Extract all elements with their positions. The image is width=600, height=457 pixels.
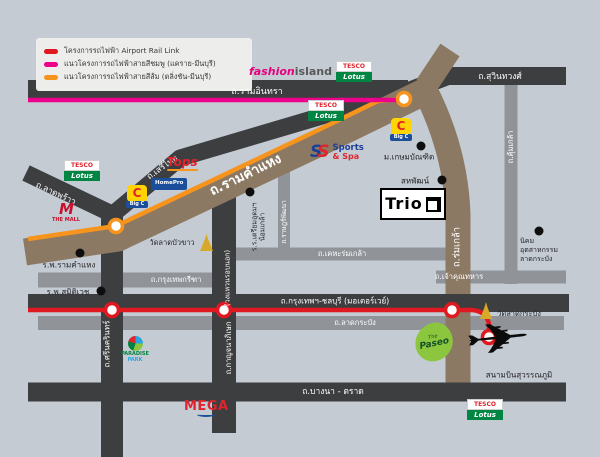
trio-cube-icon <box>426 197 441 212</box>
sports-spa-line2: & Spa <box>333 153 364 161</box>
paradise-park-line2: PARK <box>117 358 153 364</box>
legend-item-orange-line: แนวโครงการรถไฟฟ้าสายสีส้ม (ตลิ่งชัน-มีนบ… <box>44 72 244 83</box>
road-label-ramintra: ถ.รามอินทรา <box>231 84 283 98</box>
road-label-kanchanaphisek: ถ.กาญจนาภิเษก <box>223 322 235 375</box>
orange-line-swatch <box>44 75 58 80</box>
poi-label-wat-lad-bua-khaw: วัดลาดบัวขาว <box>149 237 194 249</box>
paradise-park-logo: PARADISE PARK <box>117 336 153 364</box>
bigc-wordmark: Big C <box>126 201 148 208</box>
poi-label-nikhom-lat-krabang: นิคม อุตสาหกรรม ลาดกระบัง <box>520 237 558 263</box>
tesco-wordmark: TESCO <box>467 399 503 410</box>
road-label-krungthep-kreetha: ถ.กรุงเทพกรีฑา <box>151 274 202 286</box>
legend-label: แนวโครงการรถไฟฟ้าสายสีส้ม (ตลิ่งชัน-มีนบ… <box>64 72 211 83</box>
arl-line-swatch <box>44 49 58 54</box>
tesco-wordmark: TESCO <box>308 100 344 111</box>
legend-label: แนวโครงการรถไฟฟ้าสายสีชมพู (แคราย-มีนบุร… <box>64 59 216 70</box>
poi-label-ram-hospital: ร.พ.รามคำแหง <box>43 259 96 272</box>
legend-item-pink-line: แนวโครงการรถไฟฟ้าสายสีชมพู (แคราย-มีนบุร… <box>44 59 244 70</box>
poi-dot-ram-hospital <box>76 249 85 258</box>
poi-label-sahapat: สหพัฒน์ <box>401 175 429 188</box>
pink-line-swatch <box>44 62 58 67</box>
homepro-logo: HomePro <box>151 178 187 190</box>
nikhom-line1: นิคม <box>520 237 558 246</box>
road-label-suwinthawong: ถ.สุวินทวงศ์ <box>478 69 522 83</box>
poi-dot-nikhom-lat-krabang <box>535 227 544 236</box>
poi-label-samitivej: ร.พ.สมิติเวช <box>47 286 90 299</box>
trio-wordmark: Trio <box>385 196 423 212</box>
bigc-logo-romklao: C Big C <box>390 118 412 141</box>
sports-and-spa-logo: S S Sports & Spa <box>310 144 364 161</box>
bigc-c-mark: C <box>391 118 411 135</box>
road-label-bangna-trat: ถ.บางนา - ตราด <box>302 384 364 398</box>
tesco-lotus-logo-latphrao: TESCO Lotus <box>64 160 100 181</box>
tesco-wordmark: TESCO <box>64 160 100 171</box>
tops-market-logo: Tops <box>167 156 198 171</box>
road-label-kanchanaphisek-sub: (วงแหวนรอบนอก) <box>223 250 234 306</box>
fashion-island-word2: island <box>295 65 332 78</box>
trio-logo: Trio <box>380 188 446 220</box>
road-label-motorway: ถ.กรุงเทพฯ-ชลบุรี (มอเตอร์เวย์) <box>281 295 390 308</box>
station-lam-sali <box>110 220 123 233</box>
legend-label: โครงการรถไฟฟ้า Airport Rail Link <box>64 46 179 57</box>
bigc-wordmark: Big C <box>390 134 412 141</box>
tesco-lotus-logo-ramintra-south: TESCO Lotus <box>308 100 344 121</box>
nikhom-line3: ลาดกระบัง <box>520 255 558 264</box>
legend-item-arl: โครงการรถไฟฟ้า Airport Rail Link <box>44 46 244 57</box>
airplane-icon: ✈ <box>462 315 534 363</box>
station-minburi-junction <box>398 93 411 106</box>
road-label-srinakarin: ถ.ศรีนครินทร์ <box>101 321 114 368</box>
lotus-wordmark: Lotus <box>336 72 372 82</box>
poi-dot-sahapat <box>438 176 447 185</box>
nikhom-line2: อุตสาหกรรม <box>520 246 558 255</box>
road-label-kheha-romklao: ถ.เคหะร่มเกล้า <box>318 248 366 260</box>
road-label-ratphatthana: ถ.ราษฎร์พัฒนา <box>279 200 289 244</box>
lotus-wordmark: Lotus <box>64 171 100 181</box>
tesco-wordmark: TESCO <box>336 61 372 72</box>
poi-label-kasem-bundit: ม.เกษมบัณฑิต <box>384 151 434 164</box>
paseo-wordmark: Paseo <box>419 337 450 352</box>
lotus-wordmark: Lotus <box>467 410 503 420</box>
the-mall-wordmark: THE MALL <box>44 218 88 223</box>
fashion-island-logo: fashionisland <box>249 62 332 78</box>
the-mall-m-mark: M <box>44 202 88 217</box>
road-label-lat-krabang: ถ.ลาดกระบัง <box>334 317 376 329</box>
road-label-chao-khun-thahan: ถ.เจ้าคุณทหาร <box>435 271 483 283</box>
lotus-wordmark: Lotus <box>308 111 344 121</box>
mega-logo: MEGA <box>184 397 229 417</box>
the-mall-logo: M THE MALL <box>44 202 88 223</box>
poi-label-suvarnabhumi-airport: สนามบินสุวรรณภูมิ <box>486 369 553 382</box>
bigc-c-mark: C <box>127 185 147 202</box>
mega-wordmark: MEGA <box>184 399 229 414</box>
legend: โครงการรถไฟฟ้า Airport Rail Link แนวโครง… <box>36 38 252 91</box>
paradise-park-swirl-icon <box>128 336 143 351</box>
poi-dot-kasem-bundit <box>417 142 426 151</box>
sports-spa-s2: S <box>317 144 329 161</box>
road-label-romklao: ถ.ร่มเกล้า <box>450 227 465 267</box>
bigc-logo-serithai: C Big C <box>126 185 148 208</box>
road-label-khumklao: ถ.คุ้มเกล้า <box>505 131 517 164</box>
tops-wordmark: Tops <box>167 156 198 168</box>
poi-dot-samitivej <box>97 287 106 296</box>
tesco-lotus-logo-ramintra-north: TESCO Lotus <box>336 61 372 82</box>
station-arl-srinakarin <box>106 304 119 317</box>
station-arl-lat-krabang <box>446 304 459 317</box>
fashion-island-word1: fashion <box>249 65 295 78</box>
poi-label-triam-udom: ร.ร.เตรียมอุดมฯ น้อมเกล้า <box>251 195 268 259</box>
map-canvas: โครงการรถไฟฟ้า Airport Rail Link แนวโครง… <box>0 0 600 457</box>
tesco-lotus-logo-bangna: TESCO Lotus <box>467 399 503 420</box>
